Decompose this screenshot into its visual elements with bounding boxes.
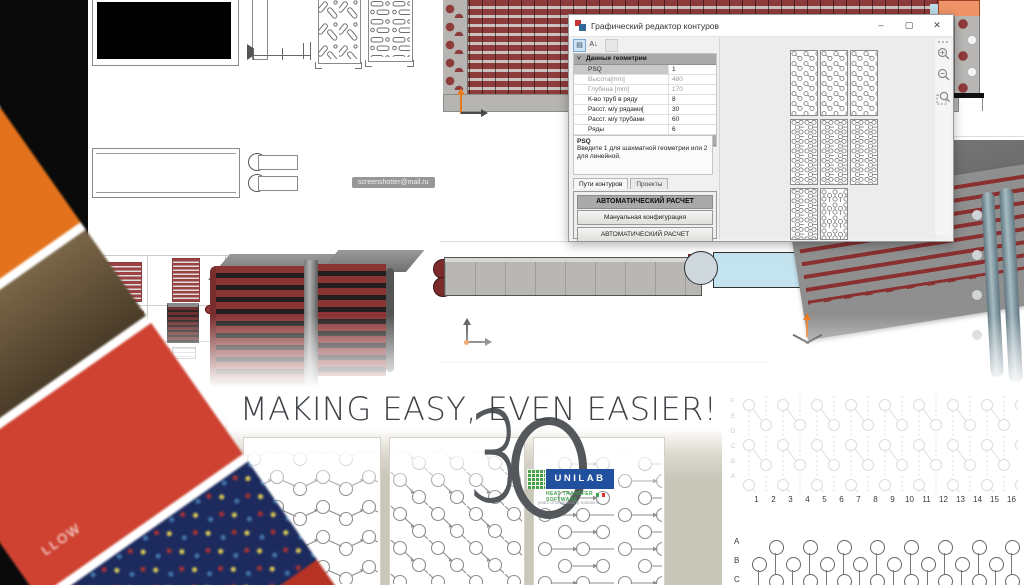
tube-circle (1005, 574, 1020, 585)
perforated-plate-2 (368, 0, 413, 62)
description-line1: Введите 1 для шахматной геометрии или 2 (577, 145, 709, 153)
column-number: 7 (850, 495, 867, 504)
faded-row-letter: C (731, 444, 735, 459)
tube-connector (961, 570, 962, 585)
pipe-stub-1 (258, 155, 298, 170)
tube-circle (1005, 540, 1020, 555)
tube-connector (758, 570, 759, 585)
render-pipe-joints (972, 210, 982, 220)
column-number: 11 (918, 495, 935, 504)
zoom-toolbar (935, 39, 951, 235)
description-line2: для линейной. (577, 153, 709, 161)
column-number: 13 (952, 495, 969, 504)
tube-connector (843, 553, 844, 574)
minimize-button[interactable]: – (873, 18, 889, 32)
column-number: 1 (748, 495, 765, 504)
coil-end-cap (954, 16, 980, 94)
property-row[interactable]: Расст. м/у трубами60 (574, 115, 716, 125)
italy-flag-icon (596, 493, 605, 497)
mini-coil-side (172, 258, 200, 302)
maximize-button[interactable]: ▢ (901, 18, 917, 32)
tab-projects-ru[interactable]: Проекты (630, 178, 668, 189)
faded-row-letter: B (731, 459, 735, 474)
tab-contour-paths[interactable]: Пути контуров (573, 178, 628, 189)
pipe-stub-2 (258, 176, 298, 191)
column-number: 3 (782, 495, 799, 504)
dialog-titlebar[interactable]: Графический редактор контуров – ▢ ✕ (569, 15, 953, 37)
column-number: 4 (799, 495, 816, 504)
row-letter: A (734, 537, 739, 546)
tube-circle (972, 540, 987, 555)
axis-arrow-right (461, 112, 483, 114)
zoom-out-icon[interactable] (937, 68, 950, 81)
contour-editor-dialog: Графический редактор контуров – ▢ ✕ ▤ A↓… (568, 14, 954, 242)
zoom-window-icon[interactable] (936, 91, 951, 106)
tube-connector (1011, 553, 1012, 574)
watermark: screenshotter@mail.ru (352, 177, 435, 188)
app-icon (575, 20, 586, 31)
tube-circle (938, 540, 953, 555)
tube-circle (989, 557, 1004, 572)
row-letter: C (734, 575, 740, 584)
tube-connector (775, 553, 776, 574)
tube-connector (859, 570, 860, 585)
tube-circle (921, 557, 936, 572)
tube-connector (792, 570, 793, 585)
dialog-title: Графический редактор контуров (591, 21, 719, 31)
column-number: 5 (816, 495, 833, 504)
tube-connector (910, 553, 911, 574)
axis-arrow-up-orange (460, 92, 462, 114)
drawing-finpack-fill (97, 2, 231, 59)
tube-connector (893, 570, 894, 585)
headline: MAKING EASY, EVEN EASIER! (240, 390, 880, 428)
property-row[interactable]: К-во труб в ряду8 (574, 95, 716, 105)
pattern-canvas (719, 37, 936, 239)
tube-connector (809, 553, 810, 574)
tube-connector (876, 553, 877, 574)
dialog-tabs: Пути контуровПроекты (573, 178, 670, 189)
property-row[interactable]: Ряды6 (574, 125, 716, 135)
tube-circle (769, 574, 784, 585)
row-letters: ABC (734, 537, 744, 585)
faded-row-letter: A (731, 474, 735, 489)
tube-circle (752, 557, 767, 572)
close-button[interactable]: ✕ (929, 18, 945, 32)
tube-circle (820, 557, 835, 572)
property-row[interactable]: Расст. м/у рядами[30 (574, 105, 716, 115)
column-number: 12 (935, 495, 952, 504)
perforated-plate-1 (318, 0, 361, 64)
tube-circle (786, 557, 801, 572)
unilab-logo: UNILAB (546, 469, 614, 489)
toolbar-grip[interactable] (938, 41, 948, 43)
coil-side-slab (444, 257, 702, 296)
photo-text-llow: LLOW (39, 520, 84, 558)
tube-circle (803, 574, 818, 585)
tube-circle (904, 540, 919, 555)
property-grid: ˅Данные геометрии PSQ1 Высота[mm]480 Глу… (573, 53, 717, 147)
propgrid-toolbar: ▤ A↓ (573, 39, 713, 52)
column-number: 16 (1003, 495, 1020, 504)
coil-left-bends (443, 0, 468, 96)
coil-end-base (950, 93, 984, 98)
column-number: 8 (867, 495, 884, 504)
tube-circle (938, 574, 953, 585)
description-title: PSQ (577, 138, 709, 145)
tube-circle (803, 540, 818, 555)
unilab-subline: years of Engineering Solutions (538, 500, 628, 505)
auto-calc-header-ru: АВТОМАТИЧЕСКИЙ РАСЧЕТ (577, 195, 713, 209)
circuit-diagram (752, 540, 1024, 585)
tube-connector (944, 553, 945, 574)
tube-circle (870, 574, 885, 585)
pattern-thumbnail[interactable] (850, 50, 878, 116)
sort-az-icon[interactable]: A↓ (588, 39, 599, 50)
property-row[interactable]: Глубина [mm]170 (574, 85, 716, 95)
column-number: 6 (833, 495, 850, 504)
pattern-thumbnail[interactable] (850, 119, 878, 185)
drawing-casing-side (92, 148, 240, 198)
tube-circle (769, 540, 784, 555)
property-row[interactable]: PSQ1 (574, 65, 716, 75)
tube-circle (955, 557, 970, 572)
column-numbers-row: 12345678910111213141516 (748, 495, 1020, 504)
faded-row-letter: D (731, 429, 735, 444)
tube-circle (904, 574, 919, 585)
row-letter: B (734, 556, 739, 565)
pattern-thumbnail[interactable] (790, 119, 818, 185)
promo-collage: o.o EXTRA PEOPLE LLOW (0, 0, 1024, 585)
auto-calc-button-ru[interactable]: АВТОМАТИЧЕСКИЙ РАСЧЕТ (577, 227, 713, 242)
column-number: 14 (969, 495, 986, 504)
property-description: PSQ Введите 1 для шахматной геометрии ил… (573, 135, 713, 175)
tube-circle (972, 574, 987, 585)
manual-configuration-button-ru[interactable]: Мануальная конфигурация (577, 210, 713, 225)
pattern-thumbnail[interactable] (820, 188, 848, 240)
tube-circle (837, 540, 852, 555)
tube-circle (853, 557, 868, 572)
pattern-thumbnail[interactable] (790, 188, 818, 240)
disabled-tool-icon (605, 39, 618, 52)
unilab-grid-icon (527, 469, 545, 489)
tube-circle (837, 574, 852, 585)
pattern-thumbnail[interactable] (820, 119, 848, 185)
pattern-thumbnail[interactable] (790, 50, 818, 116)
column-number: 9 (884, 495, 901, 504)
zoom-in-icon[interactable] (937, 47, 950, 60)
tube-connector (927, 570, 928, 585)
property-row[interactable]: Высота[mm]480 (574, 75, 716, 85)
dimension-arrowhead (247, 44, 261, 60)
header-pipe-end-circle (684, 251, 718, 285)
column-number: 2 (765, 495, 782, 504)
section-geometry[interactable]: ˅Данные геометрии (574, 54, 716, 65)
column-number: 10 (901, 495, 918, 504)
tube-circle (887, 557, 902, 572)
tube-circle (870, 540, 885, 555)
tube-connector (978, 553, 979, 574)
categorize-icon[interactable]: ▤ (573, 39, 586, 52)
tube-connector (995, 570, 996, 585)
column-number: 15 (986, 495, 1003, 504)
pattern-thumbnail[interactable] (820, 50, 848, 116)
tube-connector (826, 570, 827, 585)
